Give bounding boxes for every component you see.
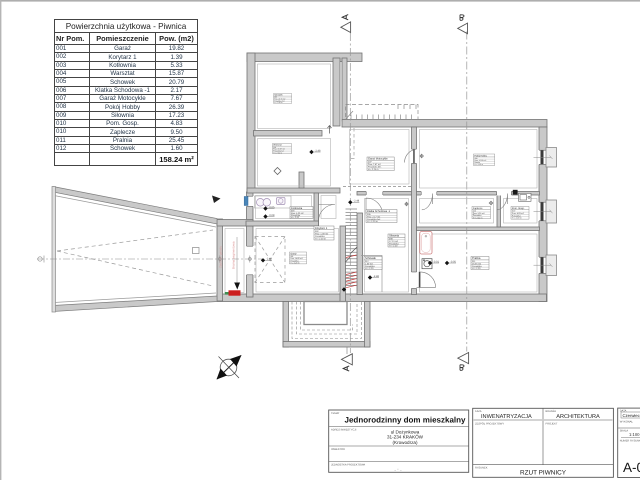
svg-text:1:100: 1:100 [629,432,640,437]
svg-text:Panele: Panele [474,161,480,163]
svg-text:Jednorodzinny dom mieszkalny: Jednorodzinny dom mieszkalny [345,416,466,425]
svg-text:-0.08: -0.08 [269,214,275,217]
svg-text:Pow. 1.39 m2: Pow. 1.39 m2 [315,232,329,235]
svg-text:Pralnia: Pralnia [472,257,481,260]
svg-text:ARCHITEKTURA: ARCHITEKTURA [556,414,600,420]
svg-text:Pom. Gosp.: Pom. Gosp. [512,207,525,210]
svg-text:H = 2.20 m: H = 2.20 m [473,217,483,220]
svg-text:ADRES INWESTYCJI: ADRES INWESTYCJI [331,429,357,432]
svg-text:Schowek: Schowek [274,94,283,96]
svg-text:H = 2.20 m: H = 2.20 m [474,164,483,166]
svg-text:H = 2.20 m: H = 2.20 m [290,262,299,265]
svg-text:Pow. 26.39 m2: Pow. 26.39 m2 [474,159,487,161]
svg-text:Posadzka: Posadzka [473,214,482,217]
svg-text:Posadzka: Posadzka [315,235,325,238]
svg-text:H = 2.20: H = 2.20 [365,267,374,270]
svg-text:H = 2.20: H = 2.20 [472,267,481,270]
svg-text:-2.48: -2.48 [373,275,379,278]
svg-text:-2.48: -2.48 [353,200,359,203]
svg-text:PROJEKT: PROJEKT [546,423,558,426]
svg-text:Zaplecze: Zaplecze [473,207,483,210]
svg-text:H = 2.20 m: H = 2.20 m [273,152,282,154]
svg-text:H = 2.20 m: H = 2.20 m [512,217,522,220]
svg-text:Czerwiec: Czerwiec [623,413,640,418]
svg-text:-0.01: -0.01 [433,260,439,263]
svg-text:Siłownia: Siłownia [389,235,400,238]
svg-text:Posadzka: Posadzka [512,215,521,218]
svg-text:Posadzka: Posadzka [290,260,299,263]
svg-text:H = 2.20 m: H = 2.20 m [315,238,326,241]
svg-text:Garaż: Garaż [290,253,297,256]
svg-text:INWENATRYZACJA: INWENATRYZACJA [481,414,532,420]
svg-text:FAZA: FAZA [475,410,482,413]
svg-text:Warsztat: Warsztat [273,144,281,146]
svg-text:Zjazd do garażu: Zjazd do garażu [219,246,223,268]
svg-text:Posadzka bet.: Posadzka bet. [368,166,382,169]
svg-text:Pow. 9.50 m2: Pow. 9.50 m2 [473,212,485,215]
svg-text:ZESPÓŁ PROJEKTOWY: ZESPÓŁ PROJEKTOWY [475,422,504,426]
svg-text:TEMAT: TEMAT [331,412,340,415]
svg-text:A-0: A-0 [623,460,640,475]
svg-text:H = 2.20 m: H = 2.20 m [274,102,282,104]
svg-text:Pow. 7.67 m2: Pow. 7.67 m2 [368,163,382,166]
svg-text:SKALA: SKALA [620,430,629,433]
svg-text:Garaż Motocykle: Garaż Motocykle [368,158,388,161]
svg-text:H = 2.20: H = 2.20 [291,216,300,219]
svg-text:BRANŻA: BRANŻA [546,409,557,413]
svg-text:H = 2.20 m: H = 2.20 m [368,168,379,171]
svg-text:-0.05: -0.05 [269,206,275,209]
svg-text:-2.48: -2.48 [266,258,272,261]
svg-text:H = 2.20 m: H = 2.20 m [367,220,378,223]
svg-text:Klatka Schodowa -1: Klatka Schodowa -1 [367,210,391,213]
svg-text:H = 2.20: H = 2.20 [389,245,398,248]
svg-text:Schowek: Schowek [365,257,377,260]
svg-text:-2.48: -2.48 [315,149,321,152]
svg-text:RZUT PIWNICY: RZUT PIWNICY [520,470,567,477]
svg-text:Pow. 19.82 m2: Pow. 19.82 m2 [290,257,303,260]
svg-text:Brama segmentowa: Brama segmentowa [232,241,236,269]
svg-text:INWESTOR: INWESTOR [331,448,345,451]
svg-text:-0.05: -0.05 [450,260,456,263]
svg-text:RYSUNEK: RYSUNEK [475,467,488,470]
svg-text:JEDNOSTKA PROJEKTOWA: JEDNOSTKA PROJEKTOWA [331,464,365,467]
svg-text:WYKONAŁ: WYKONAŁ [620,421,634,424]
svg-text:Pow. 4.83 m2: Pow. 4.83 m2 [512,212,525,215]
svg-text:. · .: . · . [394,467,401,473]
svg-text:(Krowodrza): (Krowodrza) [392,440,417,445]
svg-text:Korytarz 1: Korytarz 1 [315,227,328,230]
svg-text:NUMER RYSUNKU: NUMER RYSUNKU [620,440,640,443]
svg-text:Pokój Hobby: Pokój Hobby [474,155,487,157]
